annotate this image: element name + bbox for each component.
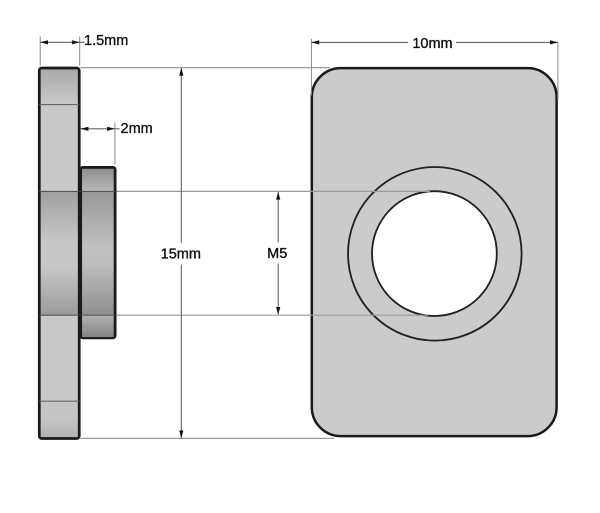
svg-text:10mm: 10mm (412, 36, 452, 52)
svg-text:15mm: 15mm (161, 247, 201, 263)
svg-text:2mm: 2mm (121, 121, 153, 137)
svg-text:M5: M5 (267, 246, 287, 262)
svg-text:1.5mm: 1.5mm (84, 33, 128, 49)
